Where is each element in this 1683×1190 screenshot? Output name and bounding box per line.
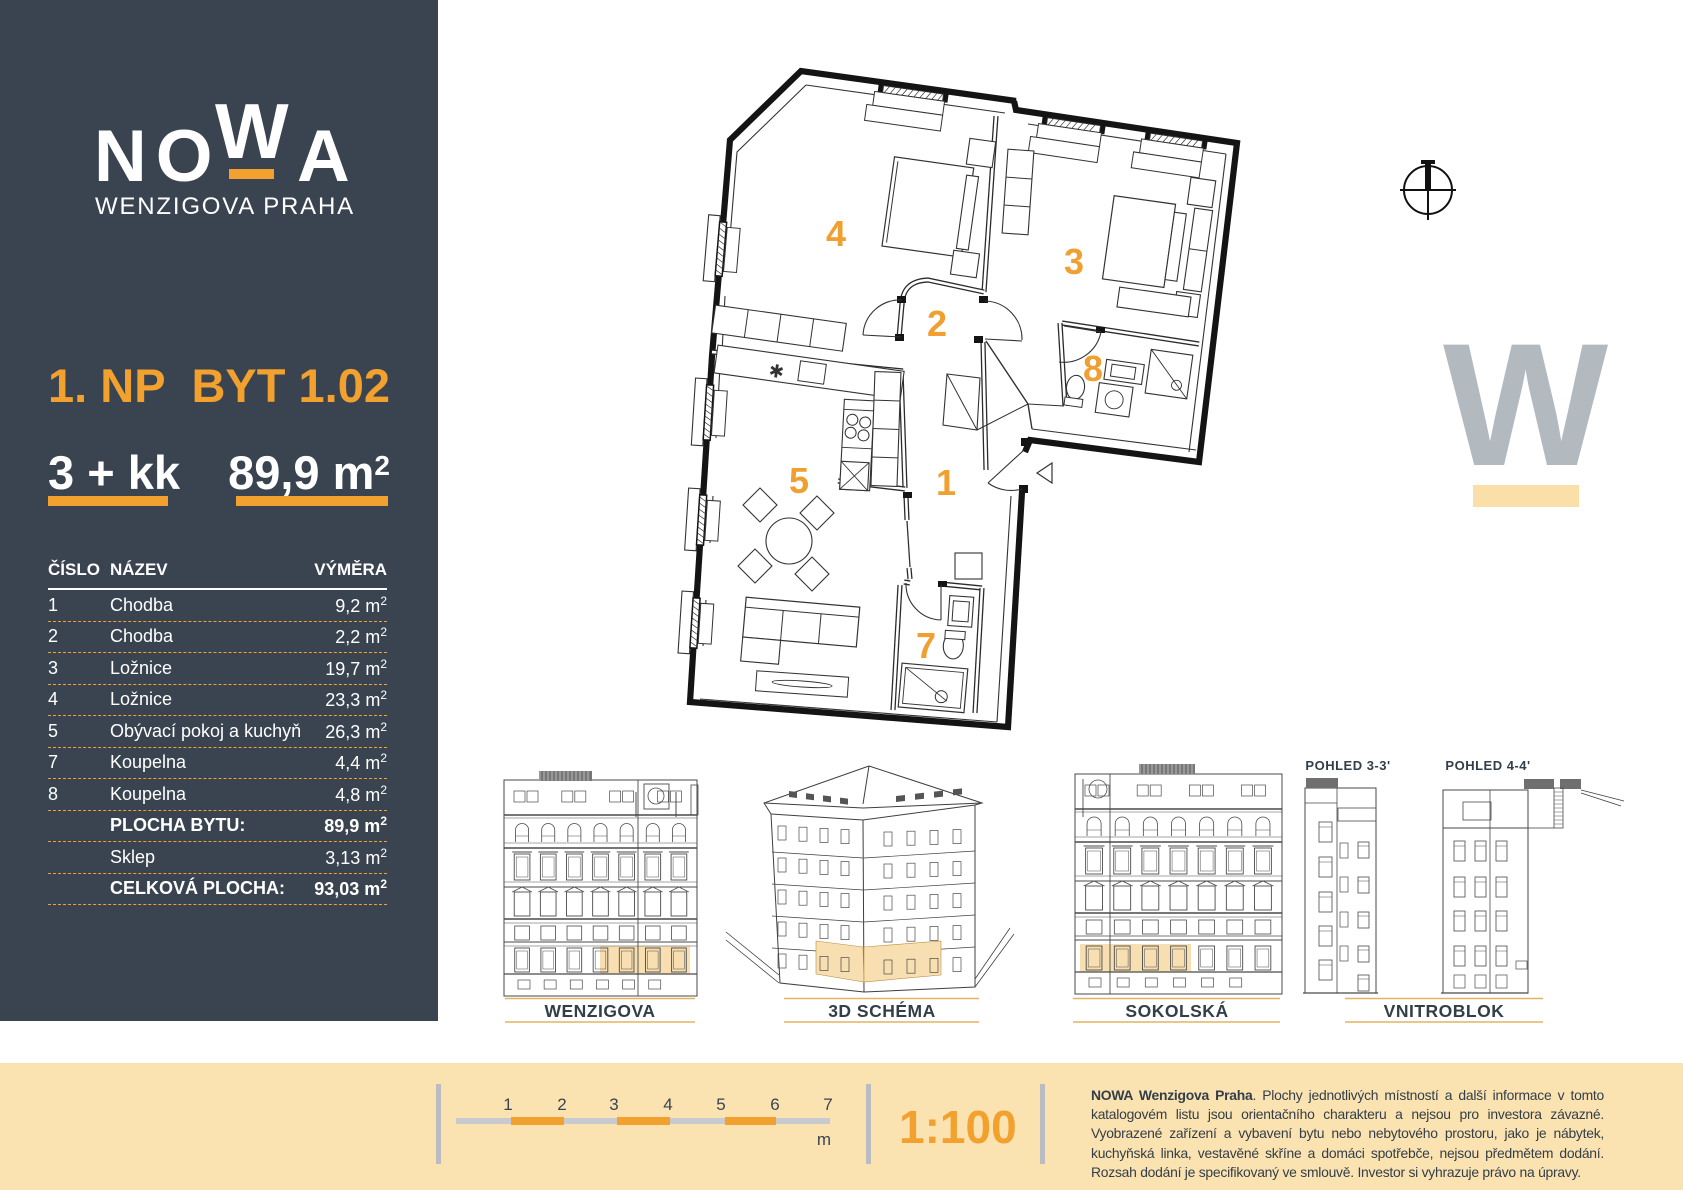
svg-text:4: 4: [663, 1095, 672, 1114]
svg-text:5: 5: [716, 1095, 725, 1114]
svg-text:5: 5: [789, 460, 809, 501]
svg-text:POHLED 3-3': POHLED 3-3': [1305, 758, 1390, 773]
svg-text:m: m: [817, 1130, 831, 1149]
svg-text:1: 1: [936, 462, 956, 503]
svg-text:2: 2: [927, 303, 947, 344]
svg-text:6: 6: [770, 1095, 779, 1114]
svg-text:4: 4: [826, 213, 846, 254]
svg-text:7: 7: [823, 1095, 832, 1114]
svg-text:3: 3: [609, 1095, 618, 1114]
svg-text:✱: ✱: [768, 361, 786, 383]
svg-text:SOKOLSKÁ: SOKOLSKÁ: [1125, 1000, 1228, 1021]
svg-text:3: 3: [1064, 241, 1084, 282]
svg-text:VNITROBLOK: VNITROBLOK: [1384, 1001, 1505, 1021]
svg-text:WENZIGOVA: WENZIGOVA: [544, 1001, 655, 1021]
svg-text:7: 7: [916, 625, 936, 666]
svg-text:POHLED 4-4': POHLED 4-4': [1445, 758, 1530, 773]
svg-text:8: 8: [1083, 348, 1103, 389]
svg-text:3D SCHÉMA: 3D SCHÉMA: [828, 1000, 936, 1021]
svg-text:1: 1: [503, 1095, 512, 1114]
svg-text:2: 2: [557, 1095, 566, 1114]
